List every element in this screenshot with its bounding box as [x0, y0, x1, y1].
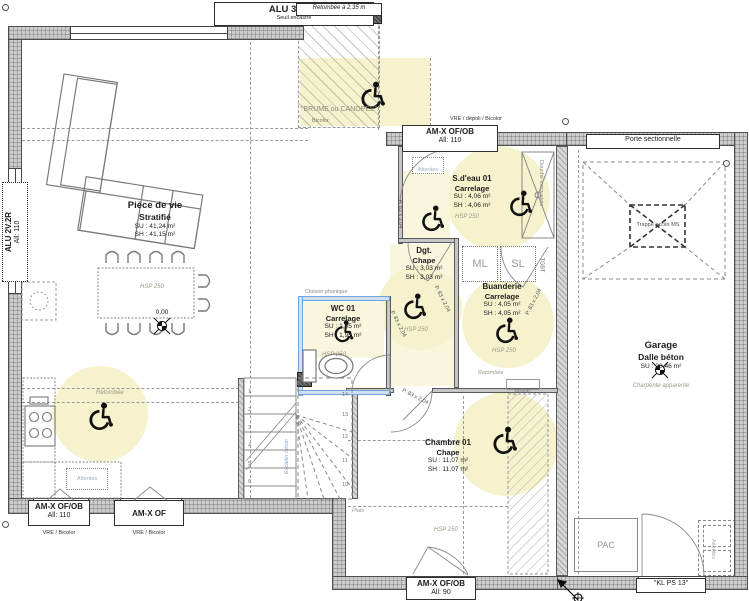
door-ref: "KL PS 13"	[637, 580, 705, 588]
attentes-inner-box	[703, 550, 731, 572]
garage-access-lines	[583, 162, 725, 279]
label-window-kitchen-1: AM-X OF/OB All: 110	[28, 500, 90, 526]
window-ref: AM-X OF/OB	[403, 127, 497, 137]
room-su: SU : 4,06 m²	[430, 193, 514, 201]
turning-circle-kitchen	[52, 366, 148, 462]
door-size-label: P. 83 x 2,04	[389, 382, 442, 413]
dryer-box: SL	[500, 246, 536, 282]
garage-note: Charpente apparente	[616, 383, 706, 391]
douche-note: Douche extra-plate	[538, 160, 544, 226]
room-finish: Chape	[404, 448, 492, 457]
pin-circle	[723, 160, 730, 167]
level-living: 0,00	[148, 309, 176, 316]
hsp-buanderie: HSP 250	[492, 348, 516, 354]
room-label-chambre: Chambre 01 Chape SU : 11,07 m² SH : 11,0…	[404, 438, 492, 474]
room-name: Dgt.	[394, 246, 454, 256]
stair-numbers: 1 2 3 4 5 6 14 13 12 11 10	[248, 389, 348, 488]
attentes-inner-box	[703, 525, 731, 547]
sl-label: SL	[511, 258, 524, 270]
window-sill: All: 110	[29, 512, 89, 520]
room-su: SU : 3,03 m²	[394, 265, 454, 273]
room-finish: Stratifié	[95, 212, 215, 223]
window-sill: All: 90	[407, 589, 475, 597]
room-label-sdeau: S.d'eau 01 Carrelage SU : 4,06 m² SH : 4…	[430, 174, 514, 210]
plats-note: Plats	[352, 508, 364, 514]
window-ref: ALU 2V.2R	[4, 183, 14, 281]
room-label-wc: WC 01 Carrelage SU : 1,95 m² SH : 1,95 m…	[310, 304, 376, 340]
wall-top-b	[226, 26, 304, 40]
room-name: Garage	[616, 340, 706, 352]
retombee-note: Retombée à 2,35 m	[297, 5, 381, 12]
retombee-buanderie: Retombée	[478, 370, 503, 376]
attentes-label: Attentes	[418, 167, 438, 173]
wall-stairs-left	[238, 378, 244, 499]
beam-line	[463, 396, 464, 574]
cooktop	[25, 397, 55, 446]
hsp-chambre: HSP 250	[434, 527, 458, 533]
hsp-wc: HSP 250	[322, 352, 346, 358]
label-garage-door: Porte sectionnelle	[586, 134, 720, 149]
label-side-door: "KL PS 13"	[636, 578, 706, 593]
door-ref: Porte sectionnelle	[587, 136, 719, 144]
window-ref: AM-X OF	[132, 509, 166, 519]
room-sh: SH : 1,95 m²	[310, 332, 376, 340]
dining-table	[98, 268, 194, 318]
room-sh: SH : 11,07 m²	[404, 466, 492, 474]
level-marker-living	[154, 318, 170, 334]
plomb-label: Plomb.	[514, 389, 531, 395]
room-finish: Carrelage	[310, 314, 376, 323]
label-window-entry: AM-X OF/OB All: 110	[402, 125, 498, 152]
label-glazing: VRE / Bicolor	[114, 530, 184, 536]
room-label-dgt: Dgt. Chape SU : 3,03 m² SH : 3,03 m²	[394, 246, 454, 282]
window-top-bay	[70, 26, 228, 40]
cloison-phonique-note: Cloison phonique	[305, 289, 348, 295]
tgbt-label: TGBT	[538, 258, 544, 273]
room-su: SU : 11,07 m²	[404, 457, 492, 465]
beam-line	[22, 128, 308, 129]
beam-line	[22, 388, 244, 389]
room-su: SU : 20,46 m²	[616, 363, 706, 371]
window-sub: Seuil encastré	[215, 15, 373, 22]
room-sh: SH : 4,06 m²	[430, 202, 514, 210]
wall-garage-left	[556, 146, 568, 576]
brume-note: "BRUME ou CANOPEE"	[301, 106, 377, 113]
porch-edge-line	[430, 58, 431, 126]
wall-right	[734, 132, 748, 590]
beam-line	[22, 140, 308, 141]
wall-wc-top-phonic	[298, 296, 390, 301]
escalier-note: Escalier béton	[284, 404, 290, 474]
window-sill: All: 110	[14, 183, 22, 281]
room-finish: Chape	[394, 256, 454, 265]
label-retombee-porch: Retombée à 2,35 m	[296, 3, 382, 16]
hsp-living: HSP 250	[140, 284, 164, 290]
label-glazing: VRE / Bicolor	[28, 530, 90, 536]
wall-wc-bottom-phonic	[298, 390, 390, 395]
room-finish: Dalle béton	[616, 352, 706, 363]
pac-label: PAC	[597, 540, 615, 550]
room-sh: SH : 41,15 m²	[95, 231, 215, 239]
trappe-note: Trappe accès MS	[628, 222, 688, 228]
room-sh: SH : 3,03 m²	[394, 274, 454, 282]
hsp-sdeau: HSP 250	[455, 214, 479, 220]
ml-label: ML	[472, 258, 487, 270]
porch-edge-line	[378, 6, 379, 130]
pac-box: PAC	[574, 518, 638, 572]
beam-line	[348, 506, 508, 507]
label-window-bedroom: AM-X OF/OB All: 90	[406, 577, 476, 600]
bicolor-note: Bicolor	[312, 118, 329, 124]
wc-corner-post	[297, 372, 312, 387]
label-window-kitchen-2: AM-X OF	[114, 500, 184, 526]
attentes-box-entry: Attentes	[412, 157, 444, 174]
room-label-garage: Garage Dalle béton SU : 20,46 m² Charpen…	[616, 340, 706, 390]
plomb-box: Plomb.	[506, 379, 540, 390]
wall-stairs-right	[352, 392, 358, 499]
svg-text:10: 10	[342, 482, 348, 488]
room-name: Buanderie	[458, 282, 546, 292]
attentes-label: Attentes	[710, 539, 716, 559]
attentes-label: Attentes	[77, 476, 97, 482]
wall-top-a	[8, 26, 74, 40]
stove-reservation	[22, 282, 56, 320]
room-name: WC 01	[310, 304, 376, 314]
floor-plan: ALU 3V.3R. Seuil encastré Retombée à 2,3…	[0, 0, 749, 601]
label-window-left-bay: ALU 2V.2R All: 110	[2, 182, 28, 282]
pin-circle	[2, 4, 9, 11]
label-entry-glazing: VRE / dépoli / Bicolor	[436, 116, 516, 122]
room-label-piece-de-vie: Pièce de vie Stratifié SU : 41,24 m² SH …	[95, 200, 215, 239]
window-ref: AM-X OF/OB	[29, 502, 89, 512]
wall-sdeau-bottom	[398, 238, 458, 243]
pin-circle	[562, 118, 569, 125]
washing-machine-box: ML	[462, 246, 498, 282]
room-finish: Carrelage	[430, 184, 514, 193]
beam-line	[578, 150, 579, 574]
room-name: Pièce de vie	[95, 200, 215, 212]
room-name: S.d'eau 01	[430, 174, 514, 184]
retombee-kitchen: Retombée	[96, 390, 124, 396]
svg-text:13: 13	[342, 412, 348, 418]
room-name: Chambre 01	[404, 438, 492, 448]
door-size-label: P. 83 x 2,04	[397, 186, 403, 242]
svg-text:11: 11	[342, 458, 348, 464]
room-su: SU : 41,24 m²	[95, 223, 215, 231]
staircase	[244, 378, 352, 499]
window-sill: All: 110	[403, 137, 497, 145]
pin-circle	[2, 521, 9, 528]
beam-line	[22, 402, 244, 403]
attentes-box-kitchen: Attentes	[66, 468, 108, 490]
window-ref: AM-X OF/OB	[407, 579, 475, 589]
room-su: SU : 1,95 m²	[310, 323, 376, 331]
attentes-box-right: Attentes	[698, 520, 736, 576]
beam-line	[250, 42, 251, 498]
hsp-dgt: HSP 250	[404, 327, 428, 333]
